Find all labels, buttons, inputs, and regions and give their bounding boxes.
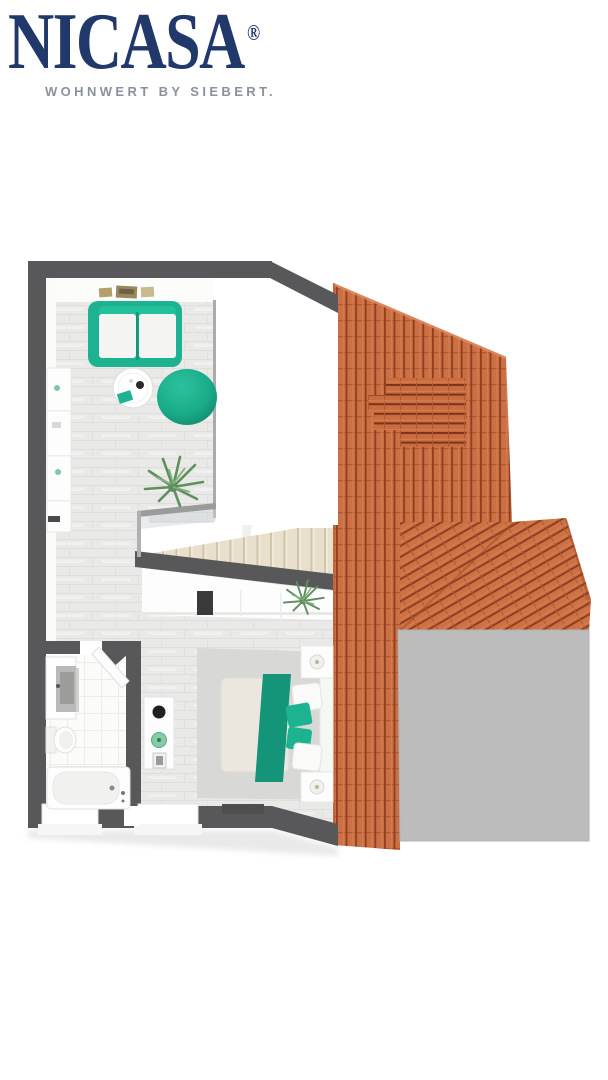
window-sill-2 (134, 824, 202, 835)
vanity-sink (46, 657, 79, 719)
left-wall (28, 261, 46, 828)
faucet (121, 791, 125, 795)
console-table (144, 697, 174, 769)
pillow-teal (285, 702, 312, 728)
drain (110, 786, 115, 791)
flat-roof (398, 630, 589, 841)
railing-post (137, 511, 141, 557)
decor-bowl-dark (153, 706, 166, 719)
bathtub (47, 767, 130, 809)
decor-bowl (136, 381, 144, 389)
pillow-white-2 (292, 743, 323, 772)
floor-threshold (222, 804, 264, 814)
mirror (76, 668, 79, 712)
nightstand-bottom (301, 772, 333, 802)
wall-shelf (47, 368, 71, 532)
bean-bag-chair (157, 369, 217, 425)
toilet (46, 727, 76, 753)
roof (333, 283, 591, 850)
floor-plan (0, 0, 608, 1080)
bathroom-wall-left (46, 641, 80, 654)
headboard (320, 676, 333, 776)
sofa (88, 301, 182, 367)
stairwell-void (214, 277, 338, 525)
top-wall (28, 261, 272, 278)
coffee-table (113, 368, 153, 408)
bedroom-window (138, 804, 198, 826)
page: NICASA® WOHNWERT BY SIEBERT. (0, 0, 608, 1080)
hip-roof (400, 518, 591, 632)
wardrobe-opening (197, 591, 213, 615)
window-sill (38, 824, 102, 835)
nightstand-top (301, 646, 333, 678)
